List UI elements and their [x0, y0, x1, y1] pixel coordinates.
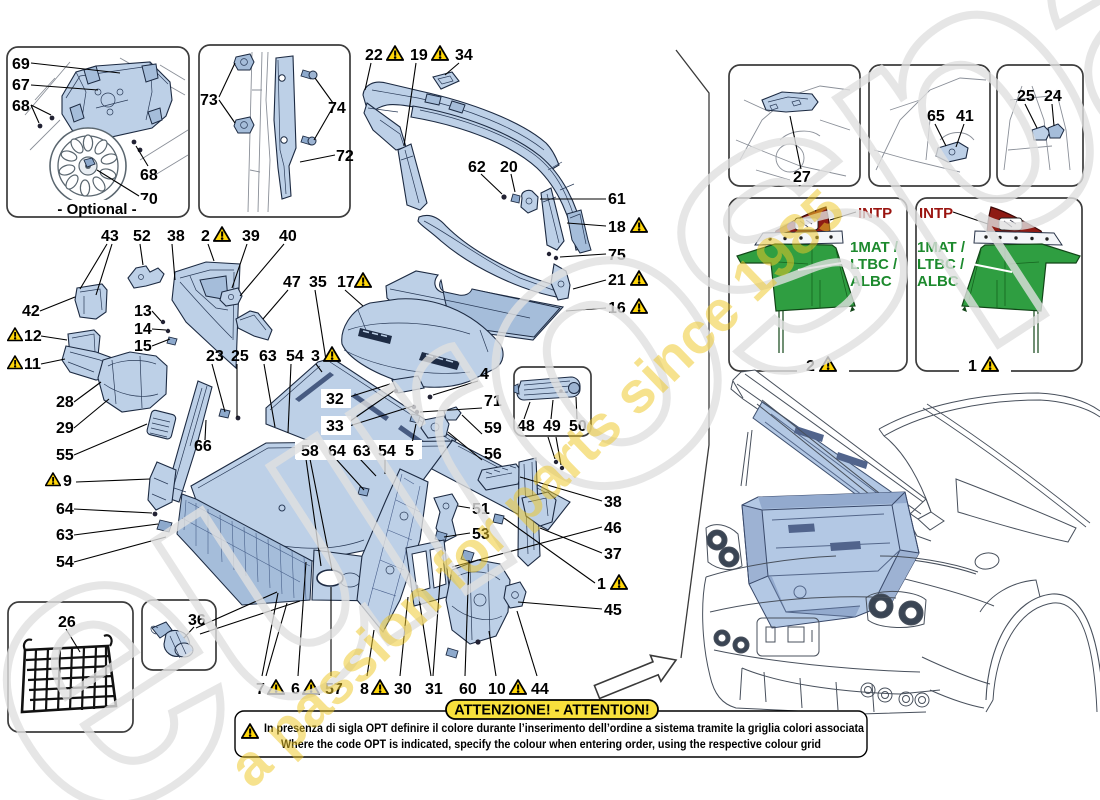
svg-text:11: 11 [24, 356, 41, 373]
svg-text:39: 39 [242, 228, 260, 245]
svg-text:13: 13 [134, 303, 152, 320]
svg-text:52: 52 [133, 228, 151, 245]
svg-text:14: 14 [134, 321, 152, 338]
svg-text:67: 67 [12, 77, 30, 94]
svg-text:72: 72 [336, 148, 354, 165]
svg-text:68: 68 [140, 167, 158, 184]
svg-text:2: 2 [201, 228, 210, 245]
svg-text:44: 44 [531, 681, 549, 698]
svg-text:43: 43 [101, 228, 119, 245]
svg-text:68: 68 [12, 98, 30, 115]
svg-text:40: 40 [279, 228, 297, 245]
svg-text:12: 12 [24, 328, 42, 345]
svg-text:19: 19 [410, 47, 428, 64]
svg-text:38: 38 [167, 228, 185, 245]
svg-text:73: 73 [200, 92, 218, 109]
svg-text:74: 74 [328, 100, 346, 117]
svg-text:15: 15 [134, 338, 152, 355]
svg-text:ATTENZIONE! - ATTENTION!: ATTENZIONE! - ATTENTION! [454, 703, 649, 719]
svg-text:22: 22 [365, 47, 383, 64]
svg-text:45: 45 [604, 602, 622, 619]
svg-text:42: 42 [22, 303, 40, 320]
svg-text:34: 34 [455, 47, 473, 64]
svg-text:- Optional -: - Optional - [57, 201, 136, 218]
svg-text:28: 28 [56, 394, 74, 411]
svg-text:10: 10 [488, 681, 506, 698]
svg-text:69: 69 [12, 56, 30, 73]
